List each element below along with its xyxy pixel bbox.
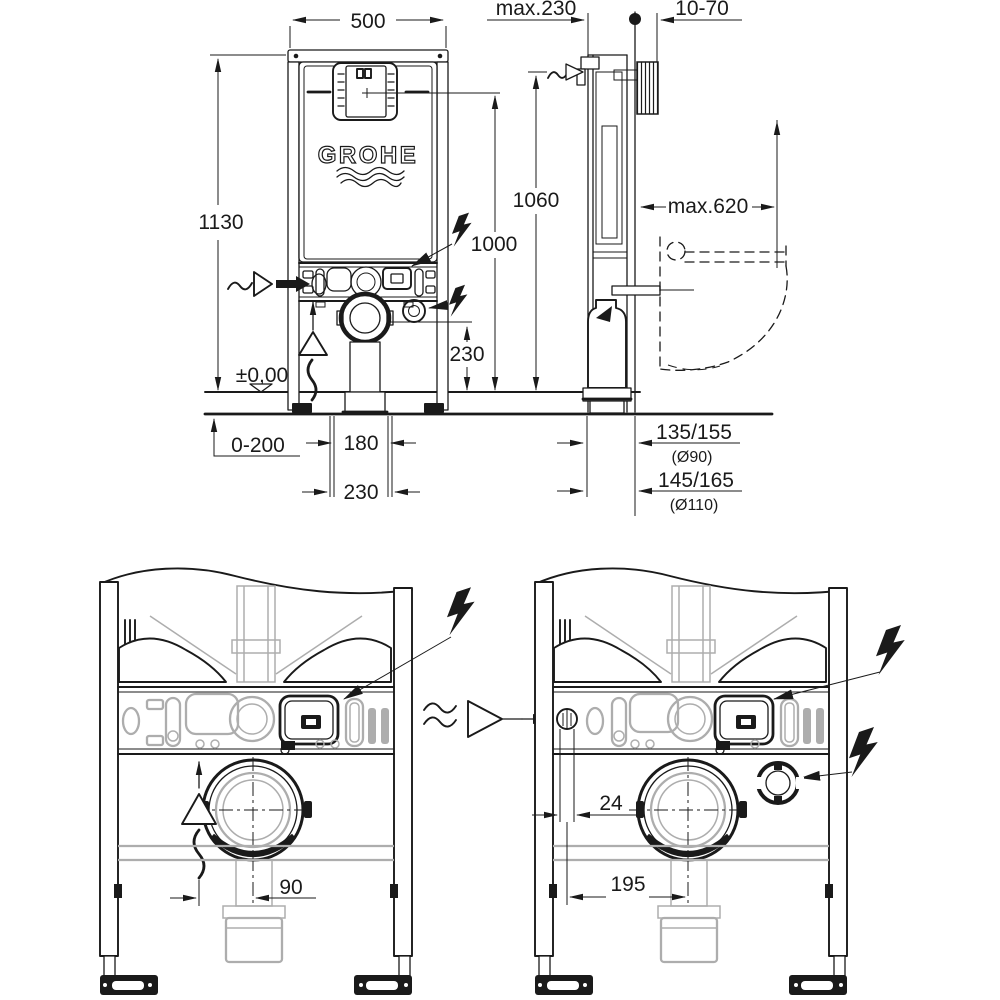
level-marker-icon [250,384,272,392]
frame-top-plate [288,50,448,62]
dim-width-label: 500 [350,10,385,33]
frame-foot-right [424,403,444,413]
odour-extraction-icon [299,302,327,400]
power-socket-icon [403,300,425,322]
flush-valve-recess [119,638,226,682]
front-view: GROHE [228,50,500,497]
lightning-bolt-icon [447,587,475,635]
dim-outlet-height-label: 230 [449,343,484,366]
technical-drawing-canvas: GROHE [0,0,1000,1000]
detail-view-left: 90 [100,568,475,995]
dim-plate-height-label: 1060 [513,189,560,212]
dim-floor-buildup-label: 0-200 [231,434,285,457]
dim-outlet90-dia-label: (Ø90) [672,449,713,466]
lightning-bolt-icon [452,213,472,247]
dim-toilet-depth-label: max.620 [668,195,749,218]
dim-outlet90-label: 135/155 [656,421,732,444]
toilet-outline [660,237,787,370]
frame-rail-right [437,62,448,410]
brand-label: GROHE [318,142,419,169]
dim-supply-offset-label: 195 [610,873,645,896]
water-inlet-hole [557,709,577,729]
dim-height-label: 1130 [198,211,243,234]
break-line [535,568,847,593]
power-connector-box [383,268,411,289]
waste-bend [629,757,747,906]
dim-actuation-height-label: 1000 [471,233,518,256]
waste-elbow [583,300,631,413]
wc-mounting-plate [612,286,660,295]
frame-rail-left [288,62,299,410]
frame-rail-right [829,588,847,956]
detail-view-right: 24 195 [532,568,905,995]
frame-rail-left [100,582,118,956]
wall-anchor [637,62,658,114]
flush-valve-recess [554,638,661,682]
frame-foot-left [292,403,312,413]
lightning-bolt-icon [876,625,905,675]
water-supply-icon [424,701,552,737]
break-line [100,568,412,593]
wall-reference-dot [629,13,641,25]
flush-actuator [333,63,397,120]
power-connector-box [280,696,338,754]
dimensions-front: 500 1130 max.230 10-70 1060 1000 max.620… [198,0,774,514]
frame-rail-right [394,588,412,956]
dim-supply-offset-label: 230 [343,481,378,504]
dim-frame-depth-label: max.230 [496,0,577,20]
dim-outlet110-label: 145/165 [658,469,734,492]
dim-outlet110-dia-label: (Ø110) [670,497,719,514]
dim-extraction-offset-label: 90 [279,876,302,899]
dim-wall-thickness-label: 10-70 [675,0,729,20]
dim-outlet-offset-label: 180 [343,432,378,455]
lightning-bolt-icon [449,285,467,317]
lightning-bolt-icon [849,727,878,777]
frame-rail-left [535,582,553,956]
power-socket-icon [754,763,804,803]
dim-hole-offset-label: 24 [599,792,623,815]
grohe-installation-drawing: GROHE [0,0,1000,1000]
power-connector-box [715,696,773,754]
waste-bend [337,294,393,412]
